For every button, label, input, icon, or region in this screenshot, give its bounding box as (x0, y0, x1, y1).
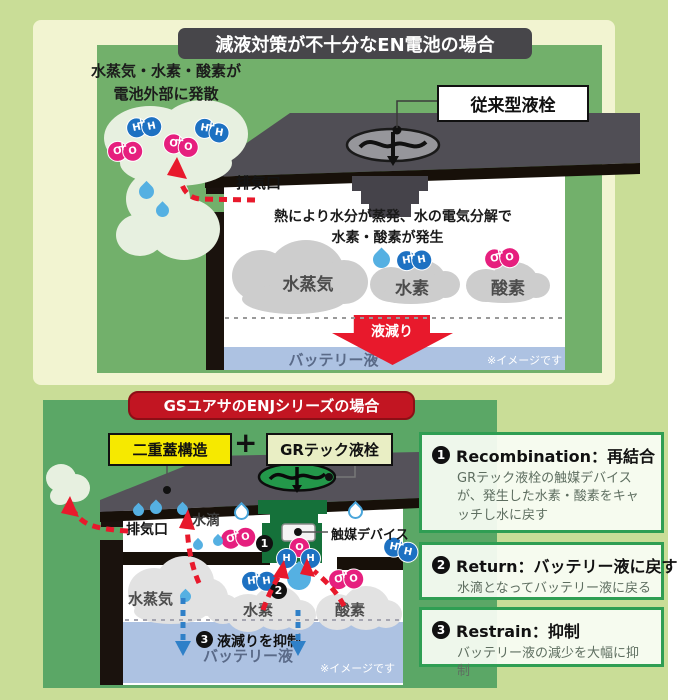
disclaimer-bottom: ※イメージです (320, 660, 395, 676)
escape-note-line2: 電池外部に発散 (86, 83, 246, 104)
step3-marker: 3 (196, 631, 213, 648)
info-box-restrain: 3 Restrain：抑制 バッテリー液の減少を大幅に抑制 (419, 607, 664, 667)
liquid-label-bottom: バッテリー液 (192, 645, 304, 666)
info-box-heading: 1 Recombination：再結合 (432, 443, 651, 467)
bottom-panel-title-banner: GSユアサのENJシリーズの場合 (128, 391, 415, 420)
bond-plus: + (174, 132, 185, 147)
info-heading-text: Restrain：抑制 (456, 618, 580, 642)
double-lid-callout: 二重蓋構造 (108, 433, 232, 466)
step2-badge: 2 (432, 556, 450, 574)
h2-molecule-icon: H + H (394, 246, 431, 273)
step1-marker: 1 (256, 535, 273, 552)
vapor-cloud-label-bottom: 水蒸気 (128, 588, 173, 609)
leader-dot (393, 126, 402, 135)
o2-molecule-icon: O + O (162, 132, 198, 156)
bond-plus: + (250, 569, 262, 584)
hydrogen-cloud-label-top: 水素 (384, 274, 440, 299)
info-box-body: バッテリー液の減少を大幅に抑制 (457, 645, 651, 682)
gr-plug-callout: GRテック液栓 (266, 433, 393, 466)
cloud-puff (50, 487, 70, 505)
cloud-puff (116, 214, 164, 256)
bottom-panel-title: GSユアサのENJシリーズの場合 (164, 395, 380, 416)
bond-plus: + (405, 247, 417, 263)
bond-plus: + (337, 566, 349, 582)
infographic-battery-diagram: H + H H + H O + O O + O H + H O + O O + … (0, 0, 700, 700)
top-panel-title: 減液対策が不十分なEN電池の場合 (215, 31, 494, 57)
info-box-heading: 3 Restrain：抑制 (432, 618, 651, 642)
top-panel-title-banner: 減液対策が不十分なEN電池の場合 (178, 28, 532, 59)
disclaimer-top: ※イメージです (487, 352, 562, 368)
leader-dot (325, 473, 333, 481)
cloud-puff (282, 600, 316, 630)
info-box-heading: 2 Return：バッテリー液に戻す (432, 553, 651, 577)
heat-note-line2: 水素・酸素が発生 (325, 227, 450, 247)
info-box-body: GRテック液栓の触媒デバイスが、発生した水素・酸素をキャッチし水に戻す (457, 470, 651, 525)
step3-badge: 3 (432, 621, 450, 639)
conventional-plug-callout: 従来型液栓 (437, 85, 589, 122)
liquid-loss-arrow-label: 液減り (362, 321, 422, 341)
step1-badge: 1 (432, 446, 450, 464)
hydrogen-cloud-label-bottom: 水素 (234, 599, 282, 620)
o2-molecule-icon: O + O (106, 138, 143, 164)
info-box-recombination: 1 Recombination：再結合 GRテック液栓の触媒デバイスが、発生した… (419, 432, 664, 533)
oxygen-cloud-label-top: 酸素 (480, 274, 536, 299)
info-heading-text: Return：バッテリー液に戻す (456, 553, 678, 577)
oxygen-cloud-label-bottom: 酸素 (324, 599, 376, 620)
droplet-label: 水滴 (192, 510, 220, 530)
vapor-cloud-label-top: 水蒸気 (266, 270, 350, 295)
catalyst-label: 触媒デバイス (331, 524, 409, 543)
escape-note-line1: 水蒸気・水素・酸素が (86, 60, 246, 81)
gr-plug-callout-label: GRテック液栓 (280, 439, 379, 460)
step2-marker: 2 (270, 582, 287, 599)
double-lid-callout-label: 二重蓋構造 (132, 439, 207, 460)
vent-label-bottom: 排気口 (126, 519, 168, 539)
o2-molecule-icon: O + O (326, 565, 363, 592)
bond-plus: + (116, 139, 128, 154)
heat-note-line1: 熱により水分が蒸発、水の電気分解で (256, 206, 530, 226)
vent-label-top: 排気口 (236, 172, 281, 193)
info-box-body: 水滴となってバッテリー液に戻る (457, 580, 651, 598)
plus-sign: + (234, 426, 257, 459)
conventional-plug-callout-label: 従来型液栓 (471, 91, 556, 116)
info-box-return: 2 Return：バッテリー液に戻す 水滴となってバッテリー液に戻る (419, 542, 664, 600)
info-heading-text: Recombination：再結合 (456, 443, 655, 467)
